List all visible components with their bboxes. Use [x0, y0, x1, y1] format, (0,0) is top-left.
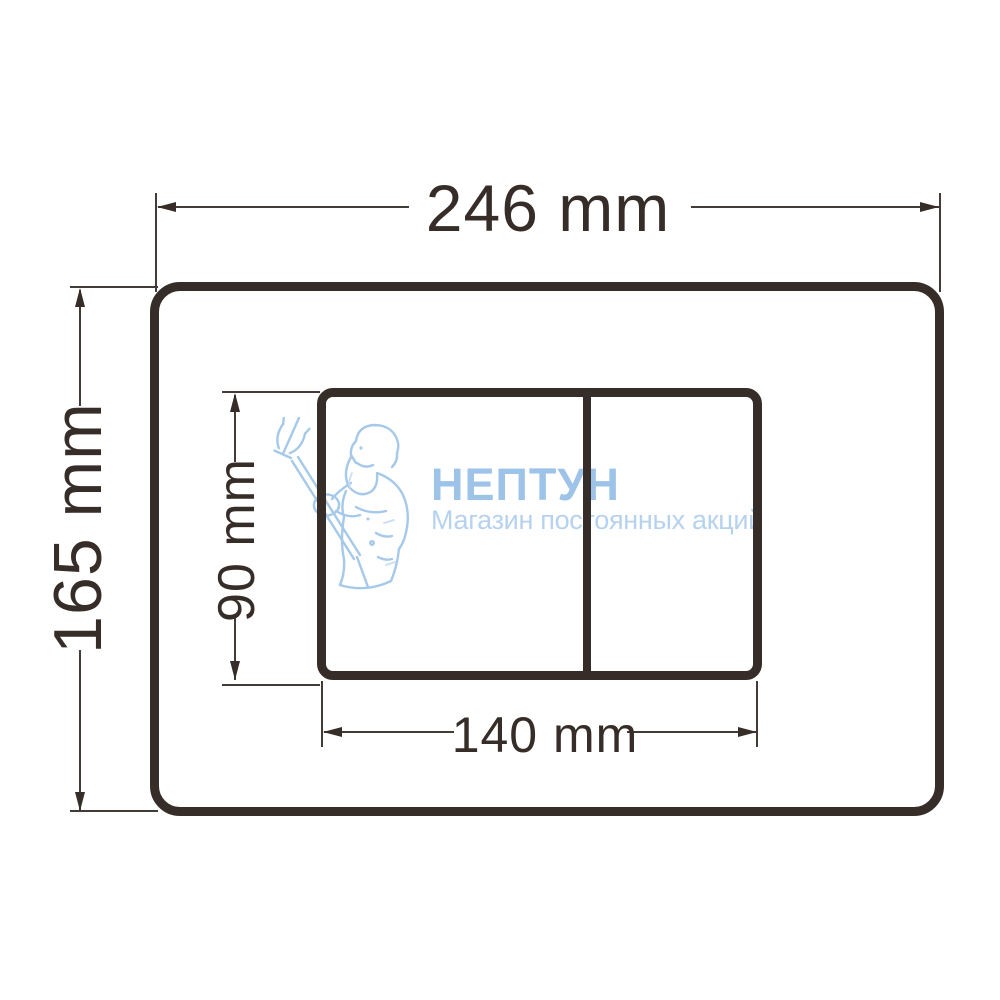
button-area-height-label: 90 mm — [207, 458, 267, 622]
arrow-right-icon — [738, 727, 757, 737]
dimension-line — [79, 290, 81, 406]
arrow-up-icon — [75, 288, 85, 307]
extension-line — [939, 193, 941, 292]
diagram-canvas: НЕПТУН Магазин постоянных акций 246 mm 1… — [0, 0, 1000, 1000]
extension-line — [222, 684, 320, 686]
arrow-up-icon — [230, 393, 240, 412]
button-area-width-label: 140 mm — [452, 706, 639, 764]
arrow-down-icon — [75, 792, 85, 811]
button-panel-outline — [317, 388, 762, 680]
arrow-left-icon — [323, 727, 342, 737]
arrow-down-icon — [230, 661, 240, 680]
arrow-left-icon — [157, 202, 176, 212]
extension-line — [321, 681, 323, 747]
dimension-line — [627, 731, 756, 733]
extension-line — [756, 681, 758, 747]
plate-width-label: 246 mm — [426, 170, 670, 246]
plate-height-label: 165 mm — [39, 402, 117, 654]
dimension-line — [324, 731, 454, 733]
dimension-line — [691, 206, 939, 208]
dimension-line — [158, 206, 409, 208]
arrow-right-icon — [920, 202, 939, 212]
dimension-line — [79, 650, 81, 810]
button-divider-line — [583, 392, 591, 676]
